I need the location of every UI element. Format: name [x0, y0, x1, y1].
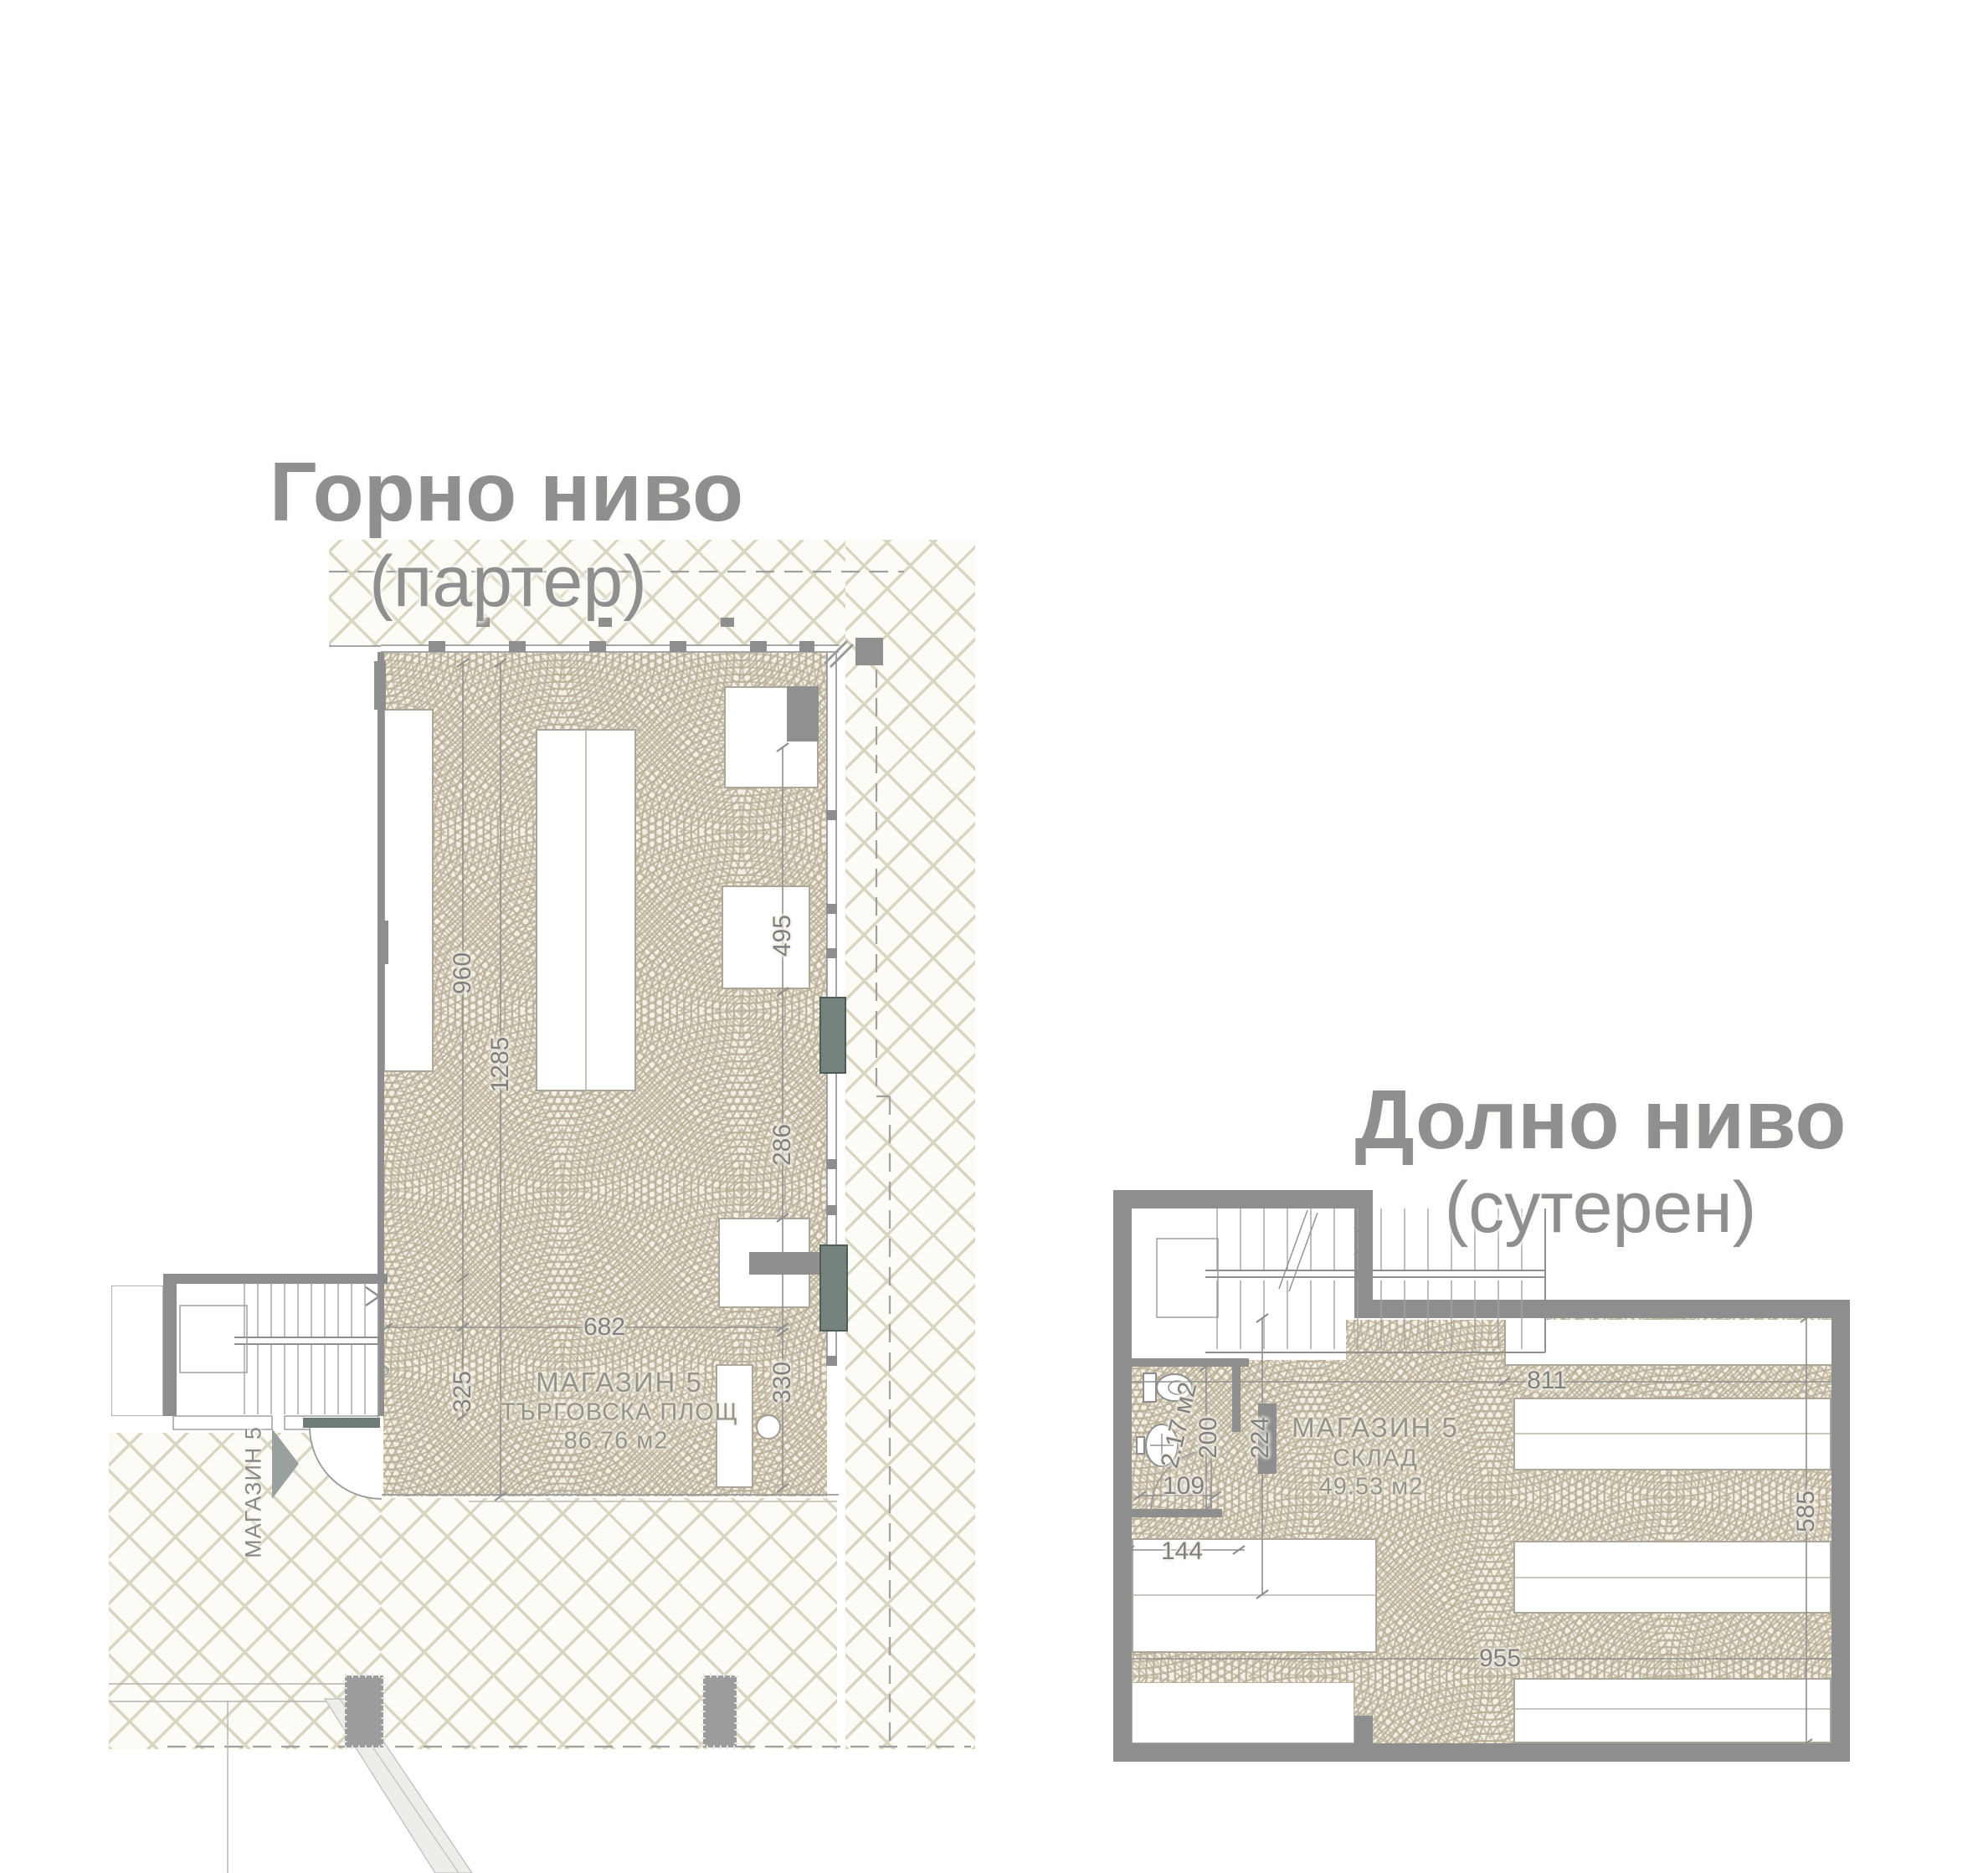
basement-wall-right — [1831, 1300, 1850, 1762]
upper-room-name: МАГАЗИН 5 — [536, 1367, 703, 1398]
dim-960: 960 — [449, 952, 477, 994]
shelf-left-wall — [383, 709, 434, 1072]
rack-right-2 — [1513, 1541, 1831, 1614]
upper-level-subtitle: (партер) — [369, 546, 647, 618]
dim-109: 109 — [1163, 1472, 1205, 1501]
dim-224: 224 — [1246, 1417, 1275, 1459]
basement-wall-stub — [1354, 1716, 1373, 1762]
upper-level-title: Горно ниво — [270, 450, 743, 534]
stool-circle — [756, 1414, 781, 1439]
basement-wall-top-left — [1113, 1190, 1373, 1208]
upper-left-wall-top-block — [374, 661, 386, 710]
shelf-middle-island — [536, 729, 636, 1091]
upper-room-area: 86.76 м2 — [564, 1428, 669, 1455]
basement-wall-left — [1113, 1190, 1132, 1762]
lower-level-title: Долно ниво — [1355, 1078, 1847, 1162]
dim-495: 495 — [768, 915, 797, 957]
wc-wall-right — [1232, 1358, 1241, 1432]
pavement-hatch-right — [845, 540, 975, 1749]
basement-wall-top-right — [1354, 1300, 1850, 1318]
dim-682: 682 — [583, 1313, 625, 1342]
dim-325: 325 — [449, 1371, 477, 1413]
lower-room-type: СКЛАД — [1333, 1445, 1418, 1473]
stair-enclosure-top-wall — [163, 1274, 388, 1284]
rack-right-1 — [1513, 1398, 1831, 1470]
wc-wall-bottom — [1123, 1509, 1222, 1517]
dim-1285: 1285 — [486, 1037, 515, 1093]
lower-room-name: МАГАЗИН 5 — [1292, 1412, 1459, 1444]
fixture-top-right — [724, 686, 819, 788]
upper-left-wall-pilaster — [378, 921, 388, 964]
upper-room-type: ТЪРГОВСКА ПЛОЩ — [501, 1399, 738, 1427]
lower-corridor-left — [1132, 1318, 1346, 1360]
pavement-hatch-bottom — [381, 1498, 837, 1749]
basement-wall-bottom — [1113, 1743, 1850, 1762]
lower-room-area: 49.53 м2 — [1319, 1474, 1424, 1501]
lower-corridor-top — [1504, 1320, 1831, 1366]
entrance-label: МАГАЗИН 5 — [241, 1426, 267, 1558]
upper-stair-interior — [177, 1284, 381, 1416]
dim-200: 200 — [1194, 1417, 1223, 1459]
dim-144: 144 — [1161, 1537, 1203, 1566]
dim-811: 811 — [1527, 1367, 1567, 1395]
stair-enclosure-left-wall — [163, 1274, 177, 1416]
neighbor-stair-bay — [111, 1285, 163, 1416]
upper-left-wall — [378, 652, 384, 1416]
lower-level-subtitle: (сутерен) — [1445, 1172, 1757, 1244]
floor-plan-canvas: Горно ниво (партер) Долно ниво (сутерен)… — [0, 0, 1988, 1873]
dim-955: 955 — [1479, 1645, 1521, 1673]
rack-right-3 — [1513, 1678, 1831, 1743]
fixture-mid-right — [722, 885, 810, 989]
dim-286: 286 — [768, 1124, 797, 1166]
fixture-low-right — [718, 1218, 810, 1308]
wc-wall-top — [1123, 1358, 1249, 1367]
dim-585: 585 — [1792, 1491, 1821, 1532]
lower-bay-bottom-left — [1132, 1682, 1354, 1743]
dim-330: 330 — [768, 1362, 797, 1403]
